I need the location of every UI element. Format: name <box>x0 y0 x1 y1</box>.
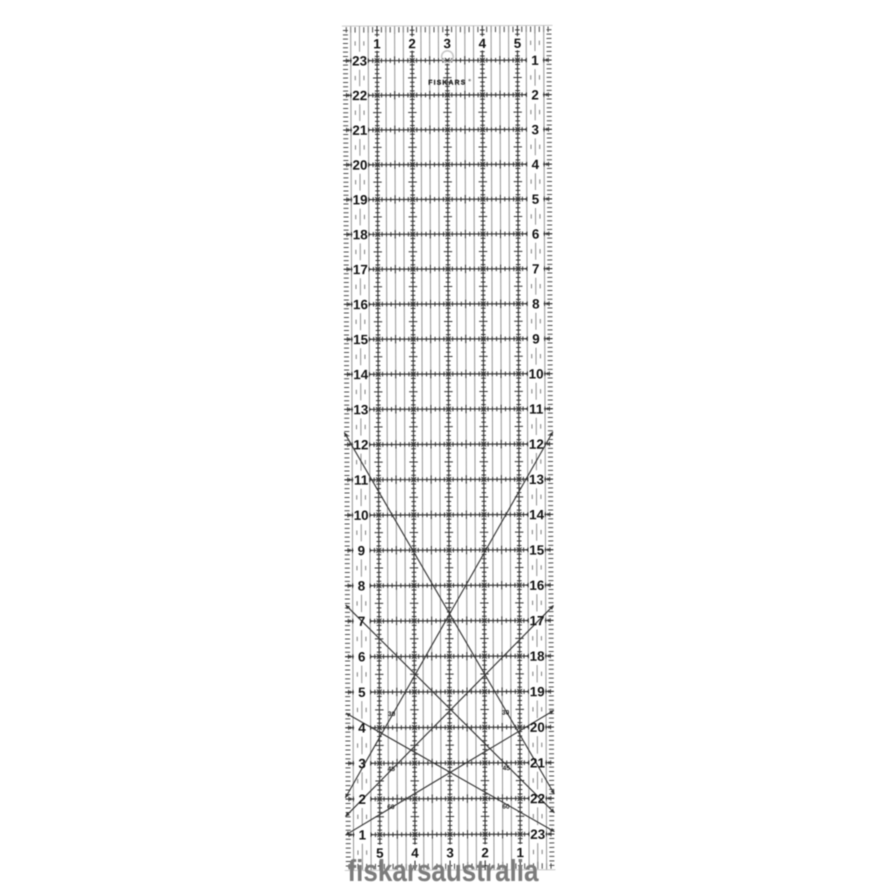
svg-text:9: 9 <box>358 543 366 558</box>
svg-text:6: 6 <box>532 227 540 242</box>
svg-text:13: 13 <box>529 472 544 487</box>
svg-text:20: 20 <box>530 720 545 735</box>
svg-text:22: 22 <box>530 791 545 806</box>
svg-text:2: 2 <box>408 36 416 51</box>
svg-text:16: 16 <box>529 578 544 593</box>
svg-text:12: 12 <box>529 437 544 452</box>
svg-text:FISKARS: FISKARS <box>428 80 466 87</box>
svg-text:2: 2 <box>531 87 539 102</box>
svg-text:7: 7 <box>358 614 366 629</box>
svg-text:6: 6 <box>358 649 366 664</box>
svg-text:1: 1 <box>373 36 381 51</box>
svg-text:8: 8 <box>532 296 540 311</box>
svg-text:4: 4 <box>532 157 540 172</box>
svg-text:21: 21 <box>352 123 367 138</box>
svg-text:17: 17 <box>353 262 368 277</box>
svg-text:4: 4 <box>358 720 366 735</box>
svg-text:9: 9 <box>532 331 540 346</box>
svg-text:14: 14 <box>353 367 368 382</box>
svg-text:7: 7 <box>532 261 540 276</box>
svg-text:10: 10 <box>529 366 544 381</box>
svg-text:16: 16 <box>353 297 368 312</box>
svg-text:3: 3 <box>443 36 451 51</box>
svg-text:30: 30 <box>502 710 510 717</box>
svg-text:18: 18 <box>530 649 545 664</box>
svg-text:19: 19 <box>530 684 545 699</box>
svg-text:45: 45 <box>388 766 396 773</box>
svg-text:5: 5 <box>514 36 522 51</box>
svg-text:11: 11 <box>354 473 369 488</box>
svg-text:3: 3 <box>531 122 539 137</box>
svg-text:14: 14 <box>529 507 544 522</box>
svg-text:®: ® <box>468 78 471 82</box>
svg-text:17: 17 <box>529 613 544 628</box>
svg-text:12: 12 <box>353 437 368 452</box>
svg-text:1: 1 <box>531 53 539 68</box>
svg-text:22: 22 <box>352 88 367 103</box>
svg-text:20: 20 <box>352 158 367 173</box>
svg-text:11: 11 <box>529 402 544 417</box>
svg-text:19: 19 <box>353 192 368 207</box>
svg-text:4: 4 <box>479 36 487 51</box>
svg-text:8: 8 <box>358 578 366 593</box>
svg-text:18: 18 <box>353 227 368 242</box>
svg-text:21: 21 <box>530 755 545 770</box>
svg-text:15: 15 <box>353 332 368 347</box>
svg-text:5: 5 <box>358 685 366 700</box>
svg-text:3: 3 <box>358 756 366 771</box>
svg-text:60: 60 <box>387 804 395 811</box>
svg-text:23: 23 <box>352 53 367 68</box>
svg-text:30: 30 <box>388 711 396 718</box>
svg-text:13: 13 <box>353 402 368 417</box>
svg-text:1: 1 <box>359 827 367 842</box>
svg-text:5: 5 <box>532 192 540 207</box>
svg-text:45: 45 <box>503 765 511 772</box>
svg-text:15: 15 <box>529 543 544 558</box>
svg-text:10: 10 <box>354 508 369 523</box>
svg-text:fiskarsaustralia: fiskarsaustralia <box>348 854 540 889</box>
svg-text:60: 60 <box>502 804 510 811</box>
svg-text:2: 2 <box>358 792 366 807</box>
svg-text:23: 23 <box>530 827 545 842</box>
